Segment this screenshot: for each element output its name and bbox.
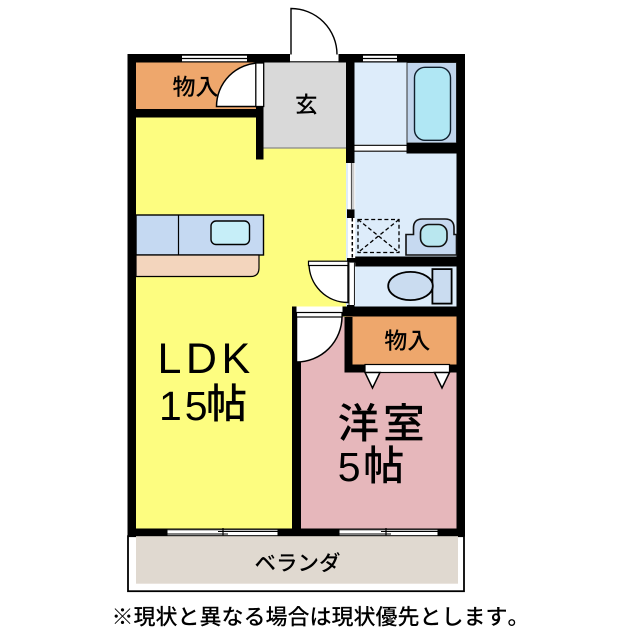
svg-text:15: 15 [159, 383, 211, 429]
svg-text:5: 5 [338, 444, 361, 490]
svg-text:LDK: LDK [158, 335, 255, 383]
